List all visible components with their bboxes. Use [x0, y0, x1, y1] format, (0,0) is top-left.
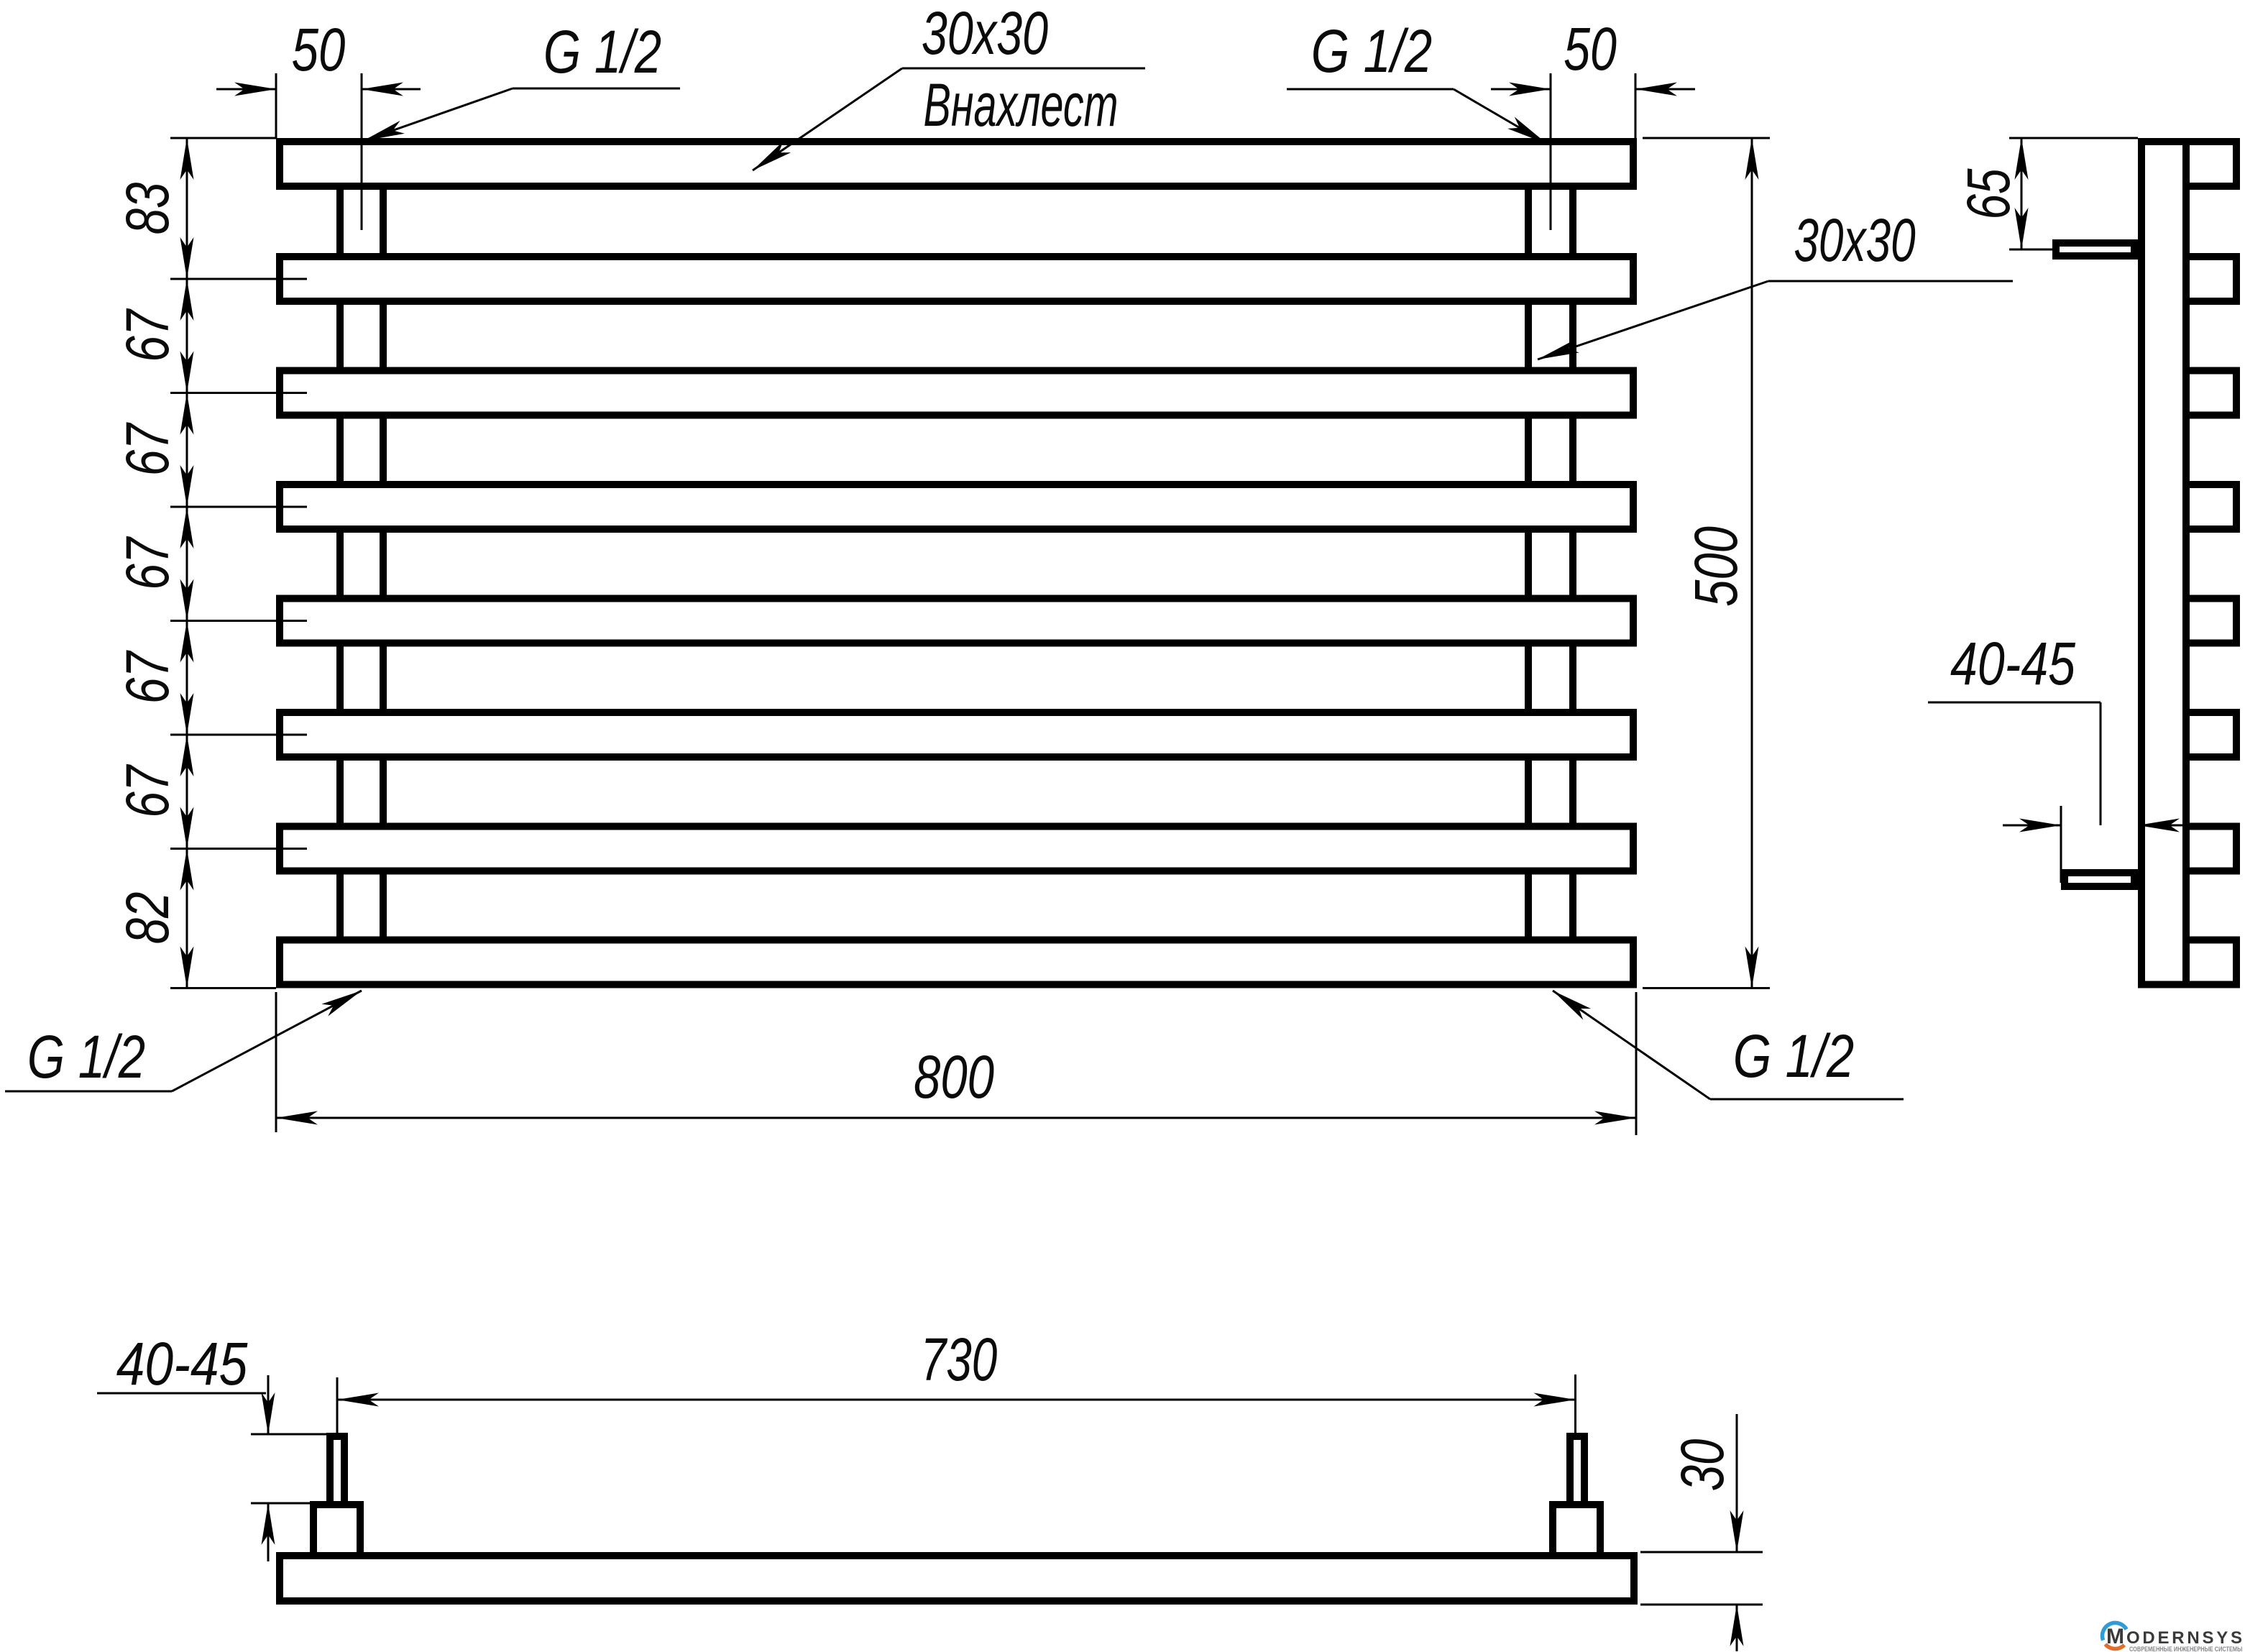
- svg-text:G 1/2: G 1/2: [27, 1024, 145, 1091]
- svg-text:30x30: 30x30: [1794, 206, 1915, 274]
- svg-text:ODERNSYS: ODERNSYS: [2126, 1628, 2243, 1648]
- svg-text:67: 67: [114, 650, 181, 705]
- svg-text:67: 67: [114, 308, 181, 362]
- svg-text:50: 50: [1564, 16, 1617, 83]
- svg-text:30x30: 30x30: [922, 0, 1048, 67]
- svg-text:50: 50: [292, 17, 346, 84]
- svg-text:65: 65: [1954, 168, 2022, 219]
- svg-text:G 1/2: G 1/2: [1733, 1023, 1854, 1091]
- svg-text:30: 30: [1668, 1438, 1736, 1491]
- svg-text:500: 500: [1683, 526, 1750, 607]
- svg-text:G 1/2: G 1/2: [1311, 18, 1432, 86]
- svg-text:M: M: [2106, 1625, 2124, 1648]
- svg-text:Внахлест: Внахлест: [924, 72, 1119, 139]
- svg-text:67: 67: [114, 763, 181, 818]
- svg-text:40-45: 40-45: [116, 1329, 248, 1398]
- svg-text:40-45: 40-45: [1950, 630, 2075, 697]
- svg-text:СОВРЕМЕННЫЕ ИНЖЕНЕРНЫЕ СИСТЕМЫ: СОВРЕМЕННЫЕ ИНЖЕНЕРНЫЕ СИСТЕМЫ: [2129, 1646, 2242, 1652]
- svg-text:67: 67: [114, 422, 181, 477]
- svg-text:83: 83: [114, 182, 181, 234]
- svg-text:730: 730: [921, 1325, 998, 1393]
- svg-text:800: 800: [914, 1044, 994, 1111]
- svg-text:G 1/2: G 1/2: [543, 19, 661, 86]
- svg-text:82: 82: [114, 892, 181, 945]
- svg-text:67: 67: [114, 536, 181, 590]
